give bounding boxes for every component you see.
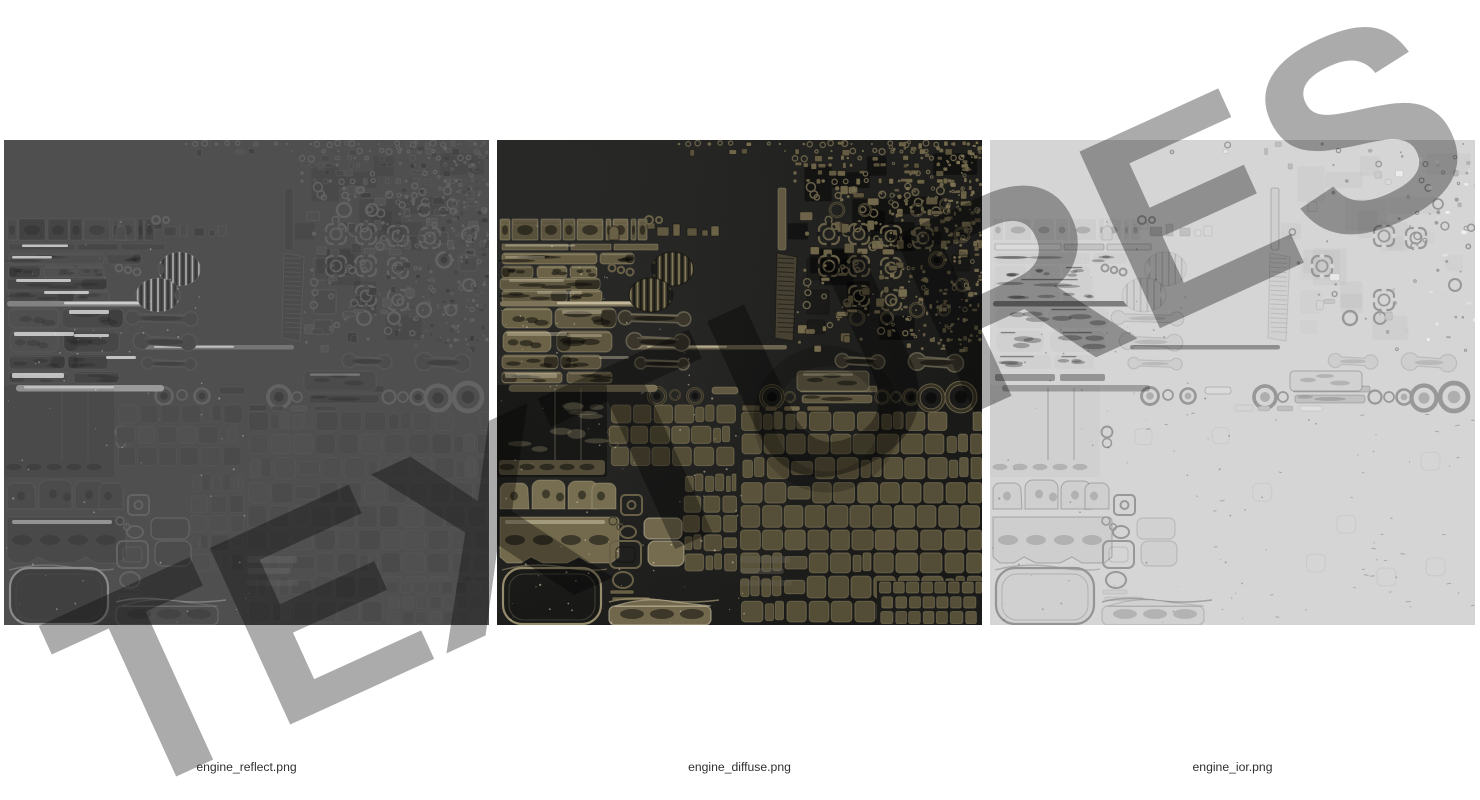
svg-text:TEXTURES: TEXTURES — [11, 0, 1480, 800]
